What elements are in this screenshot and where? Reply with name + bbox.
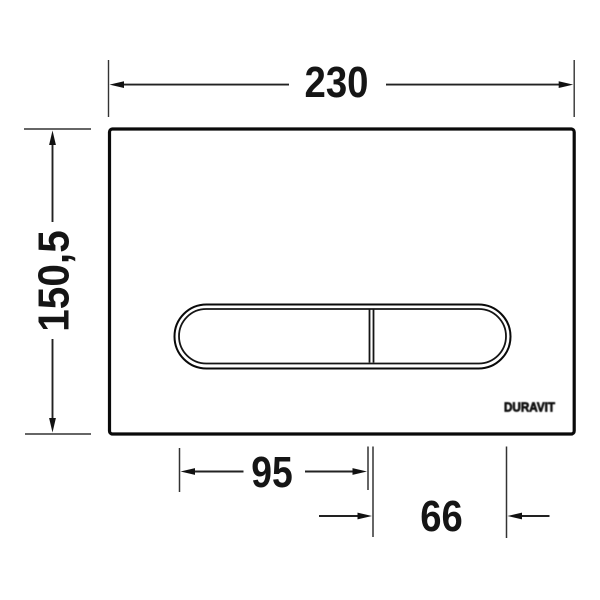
svg-text:230: 230 <box>305 59 369 107</box>
svg-text:95: 95 <box>251 449 293 497</box>
svg-text:150,5: 150,5 <box>31 230 79 332</box>
svg-text:66: 66 <box>420 493 463 541</box>
svg-text:DURAVIT: DURAVIT <box>504 400 555 415</box>
